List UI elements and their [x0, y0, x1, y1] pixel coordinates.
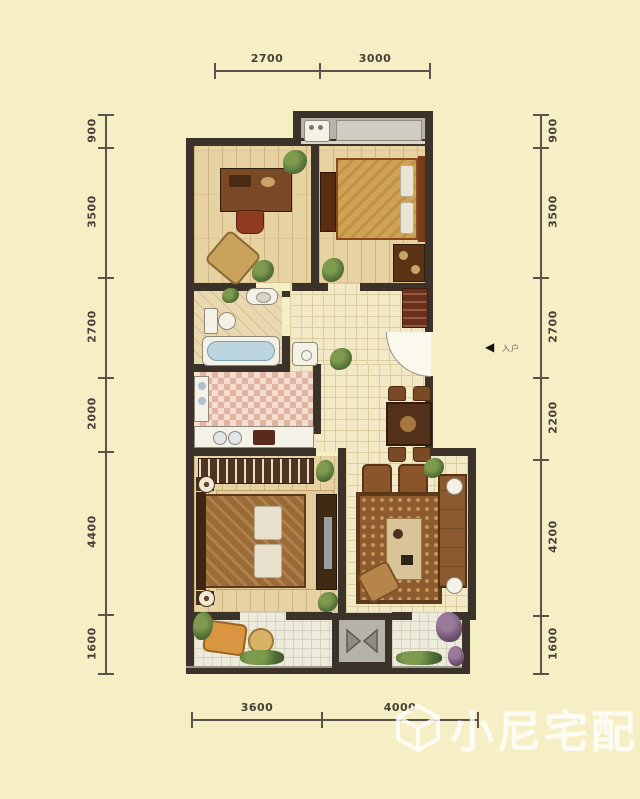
dim-tick — [533, 615, 549, 617]
entry-shoe-cabinet — [402, 288, 428, 328]
dim-label-bottom-2: 4000 — [375, 701, 425, 714]
wall-top-balcony-right — [425, 111, 433, 146]
refrigerator — [292, 342, 318, 366]
wall-master-living-divider — [338, 448, 346, 620]
bathtub — [202, 336, 280, 366]
dim-label-left-4: 2000 — [86, 389, 99, 439]
wall-kitchen-bottom — [186, 448, 316, 456]
study-chair — [236, 210, 264, 234]
pillow — [254, 544, 282, 578]
toilet — [204, 308, 218, 334]
table-item — [400, 416, 416, 432]
watermark: 小尼宅配 — [392, 696, 638, 760]
wall-bottom-b — [286, 612, 332, 620]
desk-items — [261, 177, 275, 187]
wall-study-bedroom-divider — [311, 146, 319, 283]
wall-outer-right-living — [468, 448, 476, 620]
dim-tick — [321, 712, 323, 728]
tv-screen — [324, 517, 332, 569]
pillow — [400, 202, 414, 234]
dim-tick — [98, 147, 114, 149]
dim-label-top-1: 2700 — [242, 52, 292, 65]
wall-mid-horizontal-b — [292, 283, 328, 291]
basin-bowl — [256, 292, 271, 303]
dim-line-left — [105, 115, 107, 675]
fridge-mark — [301, 350, 312, 361]
dim-tick — [98, 451, 114, 453]
kitchen-sink-small — [198, 382, 206, 390]
dim-tick — [429, 63, 431, 79]
kitchen-counter — [194, 426, 314, 448]
dim-label-left-6: 1600 — [86, 619, 99, 669]
dim-line-right — [540, 115, 542, 675]
wall-outer-right-top — [425, 146, 433, 291]
dim-tick — [214, 63, 216, 79]
kitchen-sink — [213, 431, 227, 445]
kitchen-sink-small — [198, 397, 206, 405]
wall-balcony-right — [462, 612, 470, 674]
tv-console-master — [316, 494, 337, 590]
wall-mid-horizontal-a — [186, 283, 256, 291]
dresser-item — [411, 265, 420, 274]
washer-knob — [309, 125, 314, 130]
shaft — [332, 613, 392, 669]
dim-tick — [533, 277, 549, 279]
dim-label-right-1: 900 — [547, 106, 560, 156]
master-bed — [204, 494, 306, 588]
wall-bottom-c — [392, 612, 412, 620]
bathroom-basin — [246, 288, 278, 305]
master-wardrobe — [198, 458, 314, 484]
bathtub-basin — [207, 341, 275, 361]
dim-label-left-3: 2700 — [86, 302, 99, 352]
dim-tick — [98, 614, 114, 616]
washer-knob — [318, 125, 323, 130]
pillow — [254, 506, 282, 540]
dim-tick — [533, 377, 549, 379]
dim-line-top — [215, 70, 431, 72]
flue-symbol-icon — [345, 628, 379, 654]
dim-label-top-2: 3000 — [350, 52, 400, 65]
table-decor — [393, 529, 403, 539]
wall-outer-left-top — [186, 138, 194, 291]
plant-balcony-left2 — [240, 650, 284, 665]
dim-label-bottom-1: 3600 — [232, 701, 282, 714]
dim-label-right-3: 2700 — [547, 302, 560, 352]
second-bed — [336, 158, 418, 240]
armchair — [362, 464, 392, 494]
balcony-counter — [336, 120, 422, 141]
dim-line-bottom — [192, 719, 478, 721]
floor-plan-canvas: 2700 3000 3600 4000 900 3500 2700 2000 4… — [0, 0, 640, 799]
entry-label: 入户 — [502, 343, 520, 354]
washing-machine — [304, 120, 330, 142]
kitchen-tall-unit — [194, 376, 209, 422]
dining-chair — [388, 386, 406, 401]
dim-label-right-2: 3500 — [547, 187, 560, 237]
pillow — [400, 165, 414, 197]
dim-tick — [98, 114, 114, 116]
dim-tick — [533, 459, 549, 461]
dining-chair — [388, 447, 406, 462]
dim-tick — [319, 63, 321, 79]
table-decor — [401, 555, 413, 565]
dim-tick — [98, 377, 114, 379]
plant-balcony-mid — [396, 651, 442, 665]
second-bedroom-wardrobe — [320, 172, 336, 232]
master-bed-headboard — [196, 492, 206, 590]
side-table — [446, 577, 463, 594]
wall-study-top — [186, 138, 319, 146]
dim-tick — [533, 673, 549, 675]
dim-label-right-4: 2200 — [547, 393, 560, 443]
dim-label-left-5: 4400 — [86, 507, 99, 557]
dim-label-right-5: 4200 — [547, 512, 560, 562]
stove — [253, 430, 275, 445]
wall-bathroom-right-a — [282, 291, 290, 297]
dim-tick — [98, 277, 114, 279]
entry-arrow-icon: ◀ — [485, 340, 494, 354]
side-table — [446, 478, 463, 495]
watermark-text: 小尼宅配 — [450, 696, 638, 760]
second-bed-headboard — [418, 156, 425, 242]
dining-table — [386, 402, 432, 446]
dining-chair — [413, 386, 431, 401]
bedside-lamp — [198, 590, 215, 607]
wall-balcony-bottom — [186, 666, 470, 674]
study-desk — [220, 168, 292, 212]
dim-tick — [191, 712, 193, 728]
dim-label-left-2: 3500 — [86, 187, 99, 237]
plant-balcony-right2 — [448, 646, 464, 666]
kitchen-sink — [228, 431, 242, 445]
wall-top-balcony-top — [293, 111, 433, 118]
dresser-item — [399, 251, 408, 260]
second-bedroom-dresser — [393, 244, 425, 282]
desk-items — [229, 175, 251, 187]
dim-label-right-6: 1600 — [547, 619, 560, 669]
dim-label-left-1: 900 — [86, 106, 99, 156]
toilet-bowl — [218, 312, 236, 330]
dim-tick — [98, 673, 114, 675]
plant-balcony-right — [436, 612, 462, 642]
bedside-lamp — [198, 476, 215, 493]
wall-kitchen-right — [313, 364, 321, 434]
dim-tick — [477, 712, 479, 728]
